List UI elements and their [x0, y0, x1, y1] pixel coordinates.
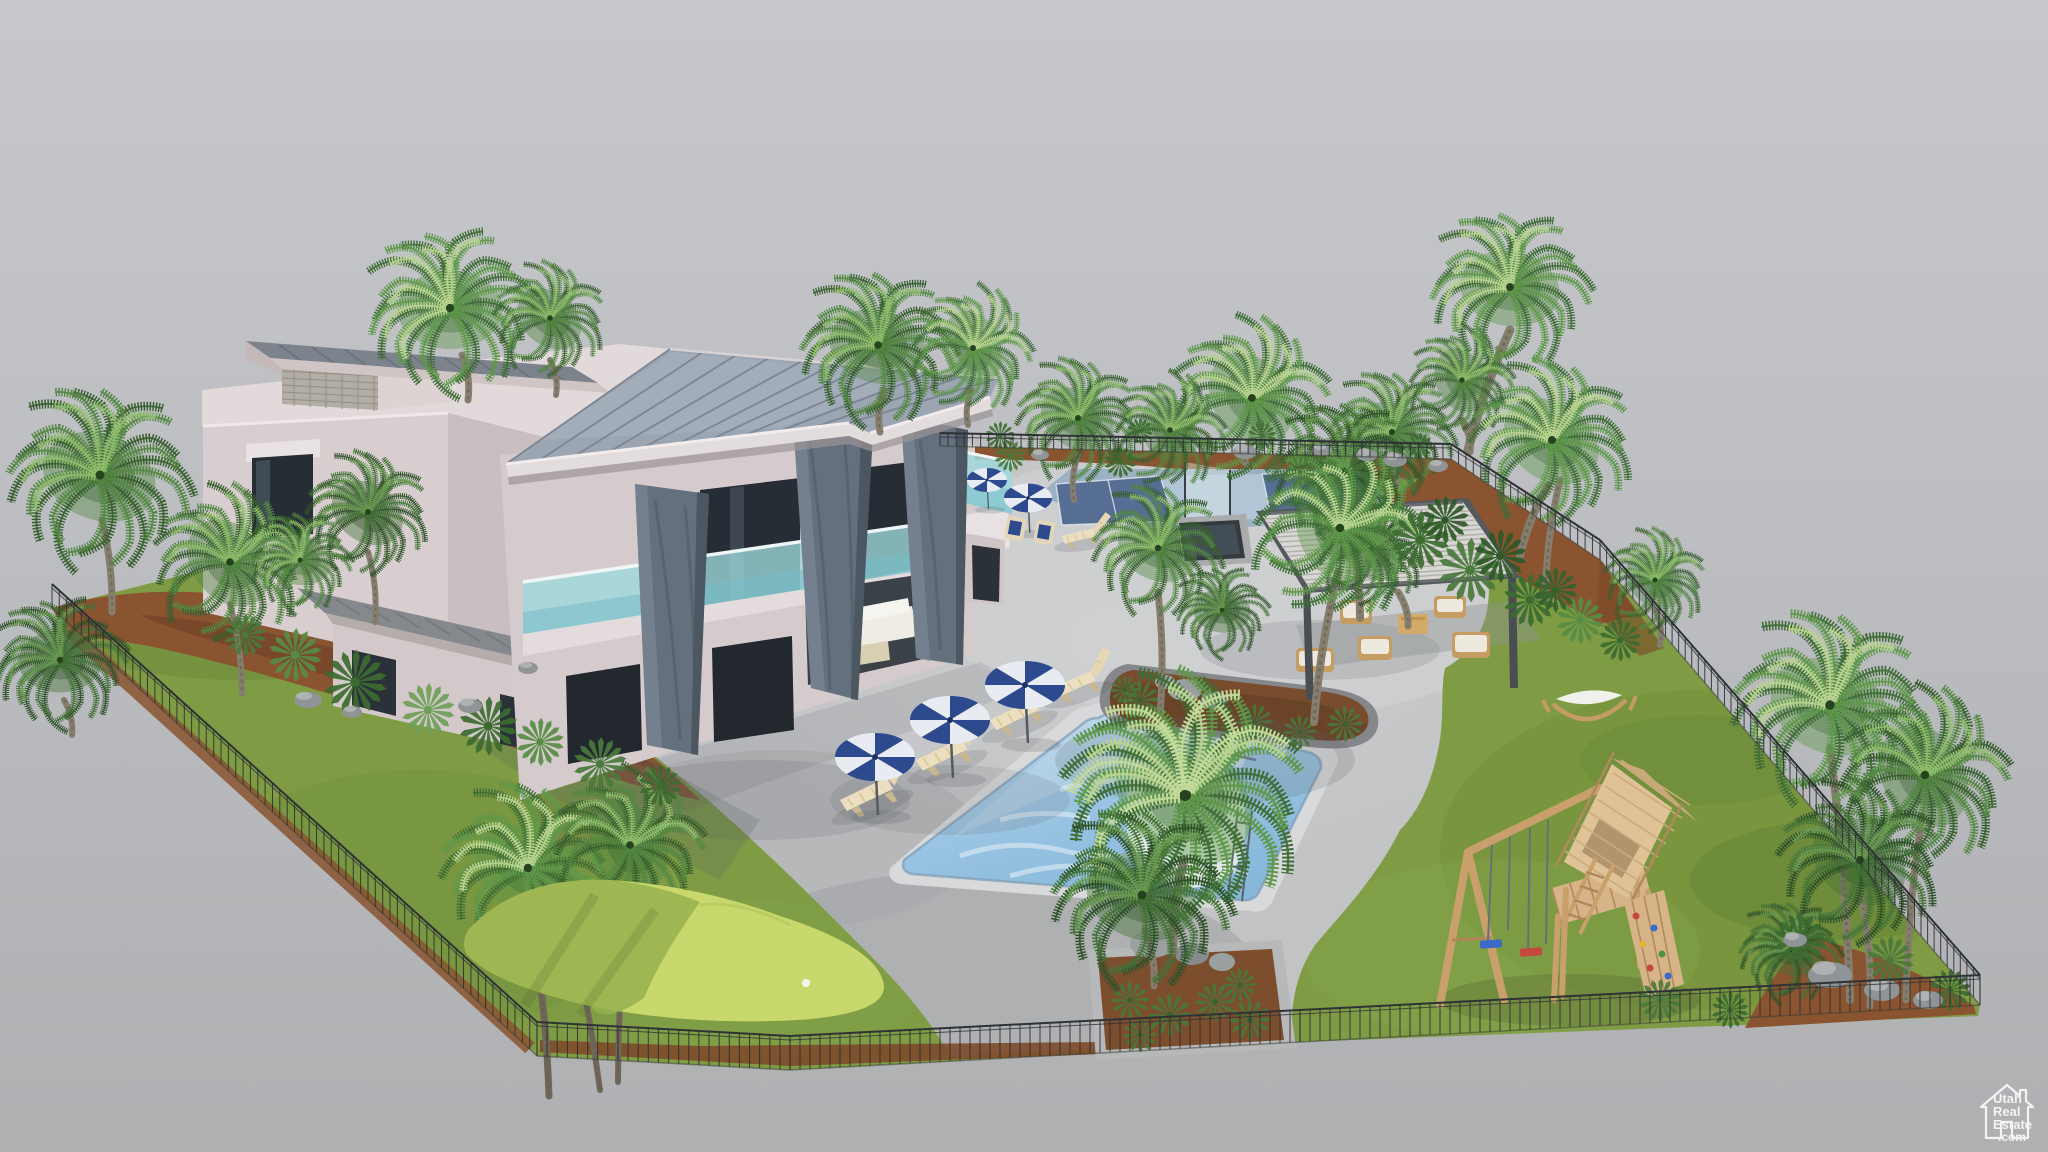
svg-text:.com: .com: [1998, 1130, 2026, 1144]
